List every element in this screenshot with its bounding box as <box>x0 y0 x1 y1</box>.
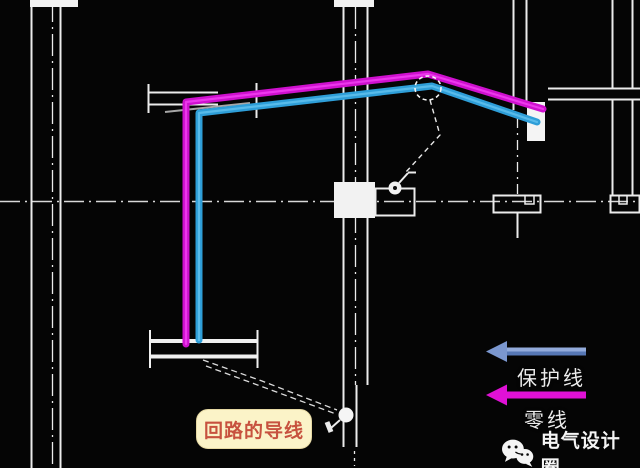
wechat-icon <box>501 438 535 468</box>
legend-protective-label: 保护线 <box>517 362 586 391</box>
switch-symbol-bottom <box>327 408 354 433</box>
bottom-left-wall <box>150 330 258 368</box>
column-top-middle <box>334 0 374 7</box>
center-column-group <box>334 182 415 218</box>
far-right-wall <box>548 0 640 213</box>
wiring-plan-svg <box>0 0 640 468</box>
watermark: 电气设计圈 <box>501 426 640 468</box>
watermark-label: 电气设计圈 <box>541 426 640 468</box>
protective-line-arrow-icon <box>486 341 586 362</box>
middle-wall <box>334 0 374 466</box>
switch-symbol-top <box>389 173 417 195</box>
callout-leader-line <box>203 360 337 414</box>
left-wall <box>30 0 78 468</box>
circuit-wire-callout-label: 回路的导线 <box>204 416 304 443</box>
center-column <box>334 182 375 218</box>
footing-notch <box>525 196 534 204</box>
column-top-left <box>30 0 78 7</box>
circuit-wire-callout: 回路的导线 <box>196 409 312 449</box>
footing-notch <box>619 196 627 204</box>
cad-drawing-canvas: 保护线 零线 回路的导线 电气设计圈 <box>0 0 640 468</box>
junction-leader-line <box>406 100 440 172</box>
